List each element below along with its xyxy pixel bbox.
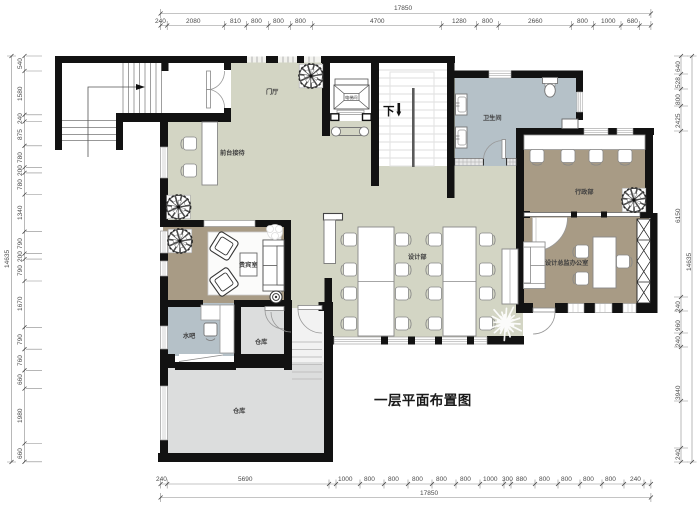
svg-text:800: 800 bbox=[412, 476, 423, 483]
svg-text:2425: 2425 bbox=[675, 113, 682, 128]
svg-text:14635: 14635 bbox=[4, 250, 11, 268]
svg-text:设计部: 设计部 bbox=[408, 253, 427, 261]
svg-text:贵宾室: 贵宾室 bbox=[239, 261, 258, 269]
svg-text:800: 800 bbox=[251, 18, 262, 25]
svg-text:800: 800 bbox=[364, 476, 375, 483]
svg-text:设计总监办公室: 设计总监办公室 bbox=[545, 259, 588, 267]
svg-text:1000: 1000 bbox=[483, 476, 498, 483]
svg-text:800: 800 bbox=[561, 476, 572, 483]
svg-text:540: 540 bbox=[17, 58, 24, 69]
svg-text:790: 790 bbox=[17, 334, 24, 345]
svg-text:240: 240 bbox=[675, 449, 682, 460]
svg-text:17850: 17850 bbox=[420, 490, 438, 497]
svg-text:仓库: 仓库 bbox=[232, 407, 246, 415]
svg-text:1580: 1580 bbox=[17, 86, 24, 101]
svg-text:2660: 2660 bbox=[528, 18, 543, 25]
svg-text:1670: 1670 bbox=[17, 296, 24, 311]
svg-text:875: 875 bbox=[17, 129, 24, 140]
svg-text:2080: 2080 bbox=[186, 18, 201, 25]
svg-text:780: 780 bbox=[17, 152, 24, 163]
svg-text:660: 660 bbox=[17, 374, 24, 385]
svg-text:一层平面布置图: 一层平面布置图 bbox=[374, 392, 472, 408]
svg-text:240: 240 bbox=[17, 113, 24, 124]
svg-text:行政部: 行政部 bbox=[574, 188, 594, 196]
svg-text:880: 880 bbox=[516, 476, 527, 483]
svg-text:17850: 17850 bbox=[394, 5, 412, 12]
svg-text:240: 240 bbox=[155, 18, 166, 25]
svg-text:240: 240 bbox=[675, 336, 682, 347]
svg-text:电梯间: 电梯间 bbox=[345, 94, 358, 101]
svg-text:1340: 1340 bbox=[17, 205, 24, 220]
svg-text:仓库: 仓库 bbox=[254, 338, 268, 346]
svg-text:800: 800 bbox=[460, 476, 471, 483]
svg-text:240: 240 bbox=[156, 476, 167, 483]
svg-text:800: 800 bbox=[295, 18, 306, 25]
svg-text:660: 660 bbox=[17, 448, 24, 459]
svg-text:6150: 6150 bbox=[675, 208, 682, 223]
svg-text:1980: 1980 bbox=[17, 408, 24, 423]
svg-text:800: 800 bbox=[539, 476, 550, 483]
svg-text:240: 240 bbox=[675, 301, 682, 312]
svg-text:680: 680 bbox=[627, 18, 638, 25]
svg-text:800: 800 bbox=[583, 476, 594, 483]
svg-text:5690: 5690 bbox=[238, 476, 253, 483]
svg-text:760: 760 bbox=[17, 355, 24, 366]
svg-text:800: 800 bbox=[482, 18, 493, 25]
svg-text:800: 800 bbox=[273, 18, 284, 25]
svg-text:800: 800 bbox=[388, 476, 399, 483]
svg-text:200: 200 bbox=[17, 251, 24, 262]
svg-text:4700: 4700 bbox=[370, 18, 385, 25]
svg-text:200: 200 bbox=[17, 165, 24, 176]
svg-text:3940: 3940 bbox=[675, 385, 682, 400]
svg-text:800: 800 bbox=[605, 476, 616, 483]
svg-text:卫生间: 卫生间 bbox=[483, 114, 502, 122]
svg-text:800: 800 bbox=[675, 94, 682, 105]
svg-text:300: 300 bbox=[502, 476, 513, 483]
svg-text:门厅: 门厅 bbox=[266, 88, 279, 96]
svg-text:800: 800 bbox=[577, 18, 588, 25]
svg-text:前台接待: 前台接待 bbox=[220, 149, 246, 157]
svg-text:790: 790 bbox=[17, 265, 24, 276]
svg-text:960: 960 bbox=[675, 320, 682, 331]
svg-text:1000: 1000 bbox=[601, 18, 616, 25]
svg-text:14635: 14635 bbox=[686, 253, 693, 271]
svg-text:水吧: 水吧 bbox=[183, 332, 196, 340]
svg-text:800: 800 bbox=[436, 476, 447, 483]
svg-text:640: 640 bbox=[675, 61, 682, 72]
svg-text:下: 下 bbox=[383, 105, 395, 118]
svg-text:790: 790 bbox=[17, 238, 24, 249]
svg-text:1280: 1280 bbox=[452, 18, 467, 25]
svg-text:780: 780 bbox=[17, 179, 24, 190]
svg-text:240: 240 bbox=[630, 476, 641, 483]
svg-text:1000: 1000 bbox=[338, 476, 353, 483]
svg-text:528: 528 bbox=[675, 77, 682, 88]
svg-text:810: 810 bbox=[230, 18, 241, 25]
